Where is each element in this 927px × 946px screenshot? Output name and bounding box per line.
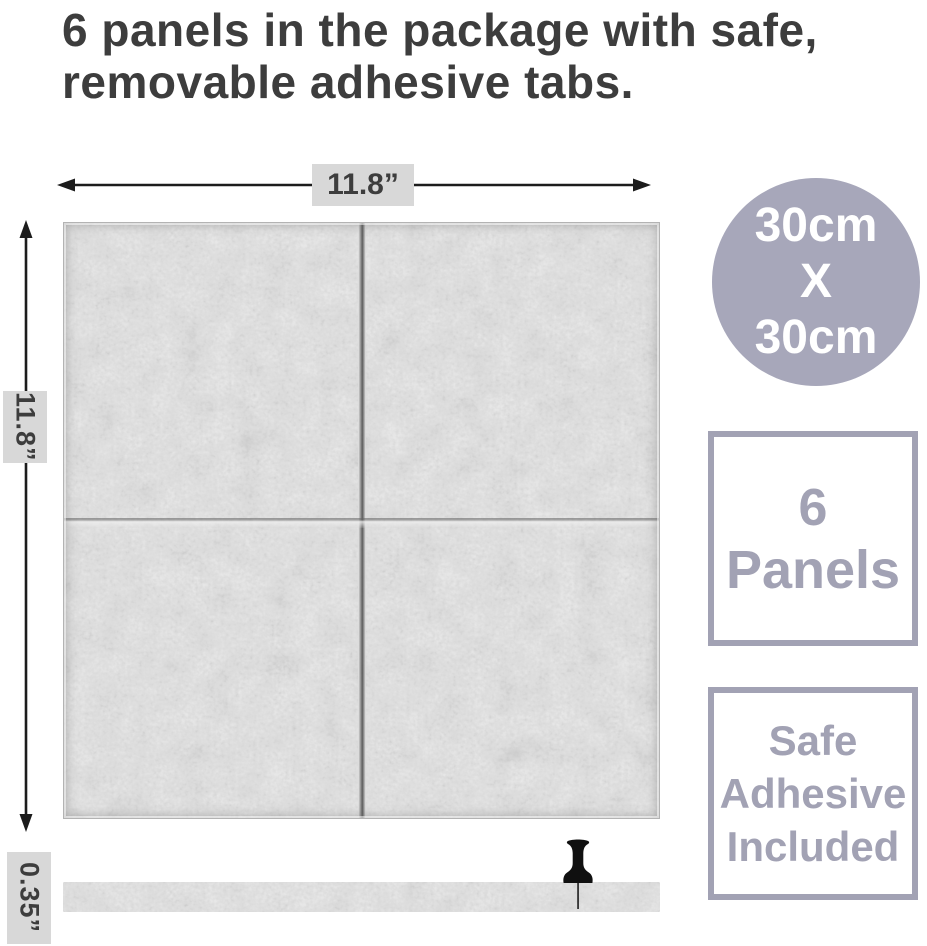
adhesive-line-1: Safe: [769, 714, 858, 767]
panel-count-number: 6: [799, 477, 828, 539]
size-line-3: 30cm: [755, 310, 878, 366]
product-infographic: 6 panels in the package with safe, remov…: [0, 0, 927, 946]
panel-count-badge: 6 Panels: [708, 431, 918, 646]
size-line-1: 30cm: [755, 198, 878, 254]
adhesive-line-3: Included: [727, 820, 900, 873]
size-circle-badge: 30cm X 30cm: [712, 178, 920, 386]
pushpin-icon: [556, 839, 600, 913]
width-dimension-label: 11.8”: [312, 164, 414, 206]
height-dimension-label: 11.8”: [3, 391, 47, 463]
headline: 6 panels in the package with safe, remov…: [62, 4, 818, 108]
thickness-dimension-label: 0.35”: [7, 852, 51, 944]
adhesive-badge: Safe Adhesive Included: [708, 687, 918, 900]
vertical-double-arrow-icon: [13, 220, 39, 832]
headline-line-1: 6 panels in the package with safe,: [62, 4, 818, 56]
acoustic-panel-front-view: [63, 222, 660, 819]
adhesive-line-2: Adhesive: [720, 767, 907, 820]
felt-texture: [64, 223, 659, 818]
headline-line-2: removable adhesive tabs.: [62, 56, 818, 108]
size-line-2: X: [800, 254, 832, 310]
panel-count-word: Panels: [726, 539, 900, 601]
